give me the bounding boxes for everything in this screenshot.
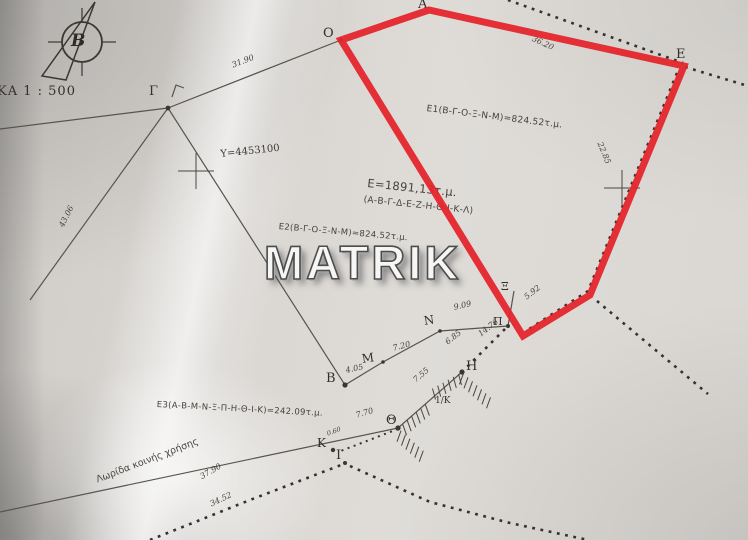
survey-plan-scan: ΑΟΓΕΞΠΝΜΒΗΘΚΙ1/Κ31.9036.2022.855.929.097… — [0, 0, 748, 540]
matrik-watermark: MATRIK — [264, 235, 461, 290]
